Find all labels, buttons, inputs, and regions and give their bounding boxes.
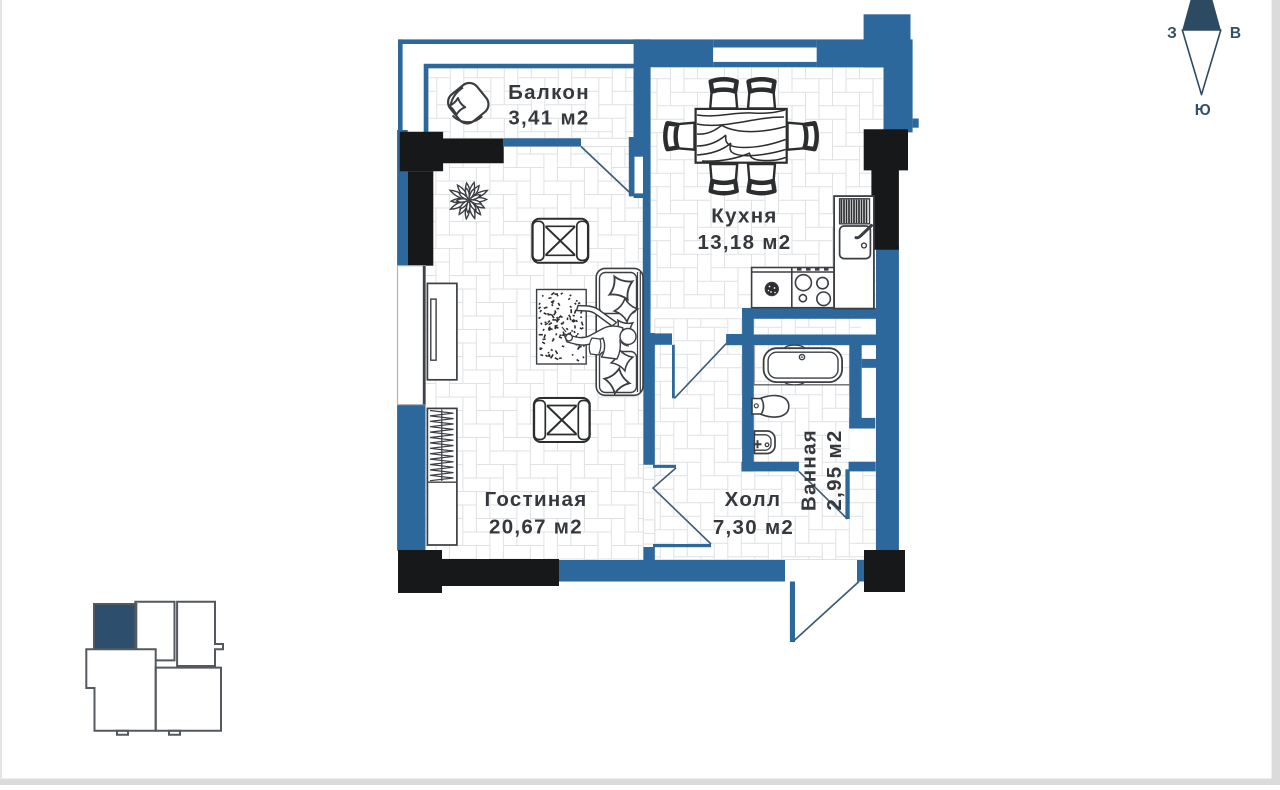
svg-text:20,67 м2: 20,67 м2 bbox=[489, 516, 583, 539]
svg-text:В: В bbox=[1230, 25, 1241, 42]
svg-text:Ванная: Ванная bbox=[798, 429, 821, 511]
svg-text:Балкон: Балкон bbox=[508, 81, 590, 104]
svg-text:З: З bbox=[1167, 25, 1177, 42]
svg-text:Холл: Холл bbox=[725, 488, 782, 511]
svg-text:Кухня: Кухня bbox=[711, 205, 777, 228]
svg-text:Гостиная: Гостиная bbox=[484, 488, 587, 511]
svg-text:7,30 м2: 7,30 м2 bbox=[713, 516, 794, 539]
svg-text:2,95 м2: 2,95 м2 bbox=[823, 429, 846, 510]
svg-text:13,18 м2: 13,18 м2 bbox=[698, 231, 792, 254]
svg-text:Ю: Ю bbox=[1195, 102, 1211, 119]
svg-text:3,41 м2: 3,41 м2 bbox=[508, 107, 589, 130]
